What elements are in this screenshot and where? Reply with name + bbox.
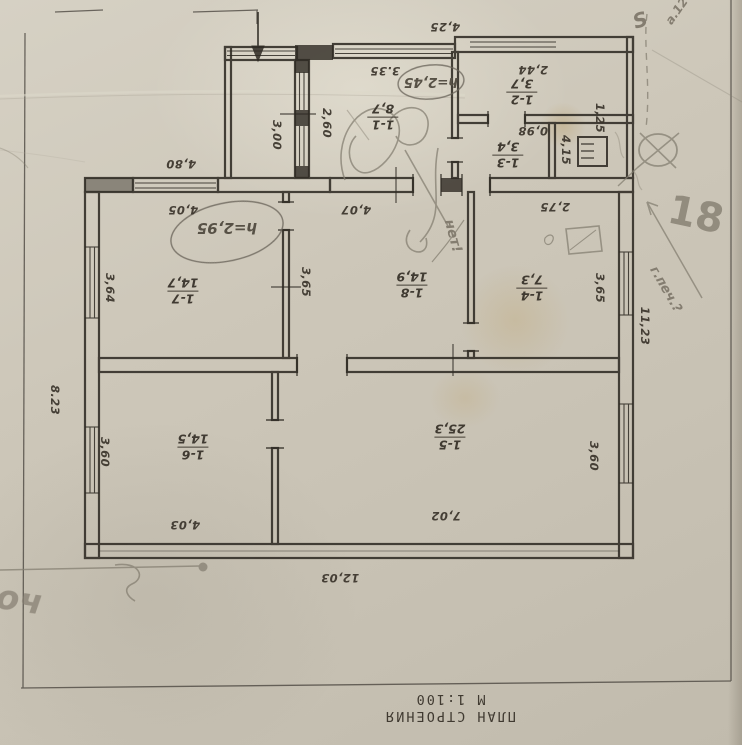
dim-room-1-1-width: 3.35 xyxy=(370,64,400,78)
room-label-1-2: 1-2 3,7 xyxy=(507,77,538,106)
room-number: 1-4 xyxy=(517,288,548,303)
dim-porch-side: 3,00 xyxy=(270,120,284,150)
room-area: 25,3 xyxy=(435,422,466,436)
dim-room-1-2-width: 2,44 xyxy=(518,63,548,77)
room-area: 14,9 xyxy=(397,270,428,284)
room-label-1-7: 1-7 14,7 xyxy=(168,276,199,305)
dim-upper-block-top: 4,25 xyxy=(430,20,460,34)
dim-room-1-4-width: 2,75 xyxy=(540,200,570,214)
dim-room-1-2-side: 1,25 xyxy=(593,103,607,133)
dim-room-1-5-side: 3,60 xyxy=(587,441,601,471)
room-area: 8,7 xyxy=(372,102,394,116)
dim-left-wing-top: 4,80 xyxy=(166,157,196,171)
room-area: 14,7 xyxy=(168,276,199,290)
stove-icon xyxy=(578,137,607,166)
dim-house-right-side: 11,23 xyxy=(638,307,652,345)
room-label-1-4: 1-4 7,3 xyxy=(517,273,548,302)
dim-room-1-7-width: 4,05 xyxy=(168,203,198,217)
room-area: 3,4 xyxy=(497,140,519,154)
dim-room-1-8-side: 3,65 xyxy=(299,267,313,297)
dim-room-1-6-width: 4,03 xyxy=(170,518,200,532)
room-area: 7,3 xyxy=(521,273,543,287)
dim-stove-room-side: 4,15 xyxy=(559,135,573,165)
room-number: 1-6 xyxy=(178,447,209,462)
room-label-1-8: 1-8 14,9 xyxy=(397,270,428,299)
dim-room-1-5-width: 7,02 xyxy=(431,509,461,523)
room-label-1-5: 1-5 25,3 xyxy=(435,422,466,451)
room-number: 1-2 xyxy=(507,92,538,107)
dim-room-1-7-side: 3,64 xyxy=(103,273,117,303)
dim-room-1-8-width: 4,07 xyxy=(341,203,371,217)
room-number: 1-1 xyxy=(368,117,399,132)
dim-porch-inner: 2,60 xyxy=(320,108,334,138)
plan-scale: М 1:100 xyxy=(384,690,516,707)
dim-house-bottom-width: 12,03 xyxy=(321,571,359,585)
pencil-bottom-scrawl: оч xyxy=(0,577,45,623)
room-area: 3,7 xyxy=(511,77,533,91)
room-number: 1-7 xyxy=(168,291,199,306)
room-number: 1-3 xyxy=(493,155,524,170)
entrance-arrow-icon xyxy=(252,12,264,61)
room-label-1-1: 1-1 8,7 xyxy=(368,102,399,131)
dim-room-1-4-side: 3,65 xyxy=(593,273,607,303)
plan-title: ПЛАН СТРОЕНИЯ xyxy=(384,707,516,724)
room-number: 1-8 xyxy=(397,285,428,300)
room-number: 1-5 xyxy=(435,437,466,452)
dim-house-left-side: 8.23 xyxy=(48,385,62,415)
dim-room-1-6-side: 3,60 xyxy=(98,437,112,467)
room-label-1-6: 1-6 14,5 xyxy=(178,432,209,461)
height-note-upper: h=2,45 xyxy=(404,74,458,90)
solid-wall-piers xyxy=(85,45,462,192)
dim-room-1-3-width: 0,98 xyxy=(518,124,548,138)
room-label-1-3: 1-3 3,4 xyxy=(493,140,524,169)
height-note-main: h=2,95 xyxy=(197,219,257,237)
plan-title-block: ПЛАН СТРОЕНИЯ М 1:100 xyxy=(384,690,516,724)
dimension-ticks xyxy=(271,114,453,376)
room-area: 14,5 xyxy=(178,432,209,446)
scanned-floor-plan-page: 1-1 8,7 1-2 3,7 1-3 3,4 1-4 7,3 1-5 25,3… xyxy=(0,0,742,745)
